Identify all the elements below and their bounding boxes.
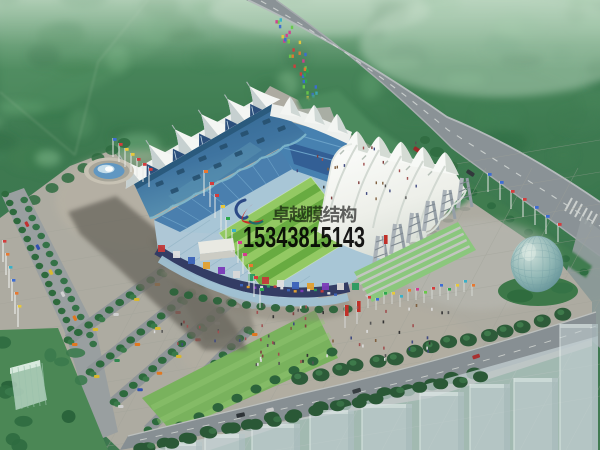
svg-text:15343815143: 15343815143 (243, 222, 365, 254)
